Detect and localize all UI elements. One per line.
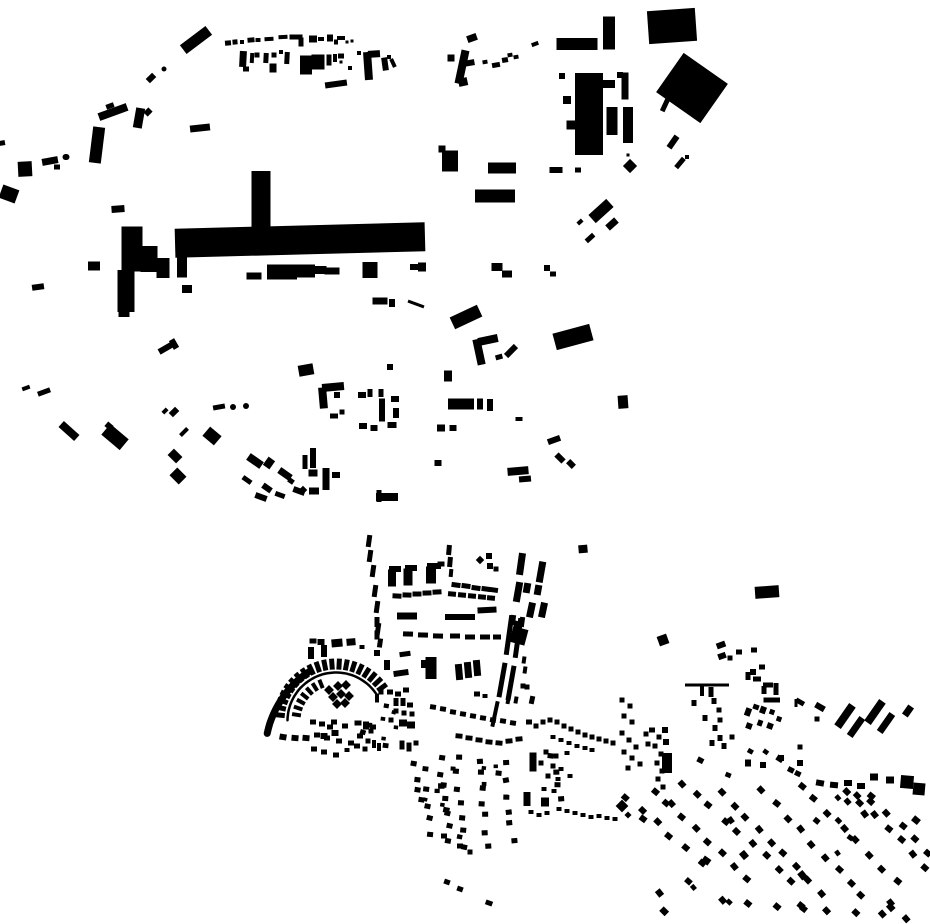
building (32, 283, 45, 291)
building (581, 813, 586, 817)
house (684, 877, 693, 886)
house (677, 779, 686, 788)
building (54, 165, 60, 170)
house (481, 766, 486, 770)
building (389, 299, 395, 307)
building (473, 660, 481, 677)
building (331, 639, 343, 648)
house (480, 785, 486, 791)
building-footprint-map (0, 0, 930, 924)
building (529, 810, 534, 814)
building (389, 566, 401, 572)
building (324, 736, 330, 741)
building (360, 645, 365, 649)
building (611, 741, 616, 746)
building (240, 40, 244, 44)
house (639, 814, 648, 823)
building (438, 562, 445, 567)
house (718, 896, 727, 905)
building (477, 334, 498, 346)
building (333, 681, 343, 691)
building (59, 421, 80, 441)
building (751, 648, 757, 653)
house (558, 796, 564, 802)
building (616, 800, 629, 813)
building (330, 414, 338, 419)
building (490, 717, 497, 723)
building (523, 582, 532, 593)
building (504, 344, 518, 358)
building (256, 38, 261, 42)
house (664, 832, 673, 841)
house (756, 785, 765, 794)
building (597, 814, 602, 818)
building (366, 739, 371, 744)
house (553, 769, 559, 774)
house (747, 748, 754, 755)
house (923, 849, 930, 858)
building (410, 264, 418, 270)
building (662, 753, 672, 773)
building (405, 565, 417, 571)
building (334, 392, 340, 398)
building (461, 583, 471, 589)
house (503, 760, 509, 765)
building (118, 270, 135, 312)
building (312, 55, 325, 70)
building (534, 724, 539, 729)
building (377, 743, 381, 751)
building (157, 258, 170, 278)
building (507, 53, 513, 58)
building (308, 647, 314, 659)
house (842, 787, 851, 796)
amphitheater-tick (329, 658, 335, 669)
building (363, 747, 368, 752)
house (834, 849, 841, 856)
building (703, 715, 708, 721)
house (383, 703, 389, 708)
house (725, 898, 732, 905)
house (902, 914, 911, 923)
building (505, 665, 516, 700)
house (454, 786, 461, 792)
building (393, 408, 399, 418)
building (443, 879, 450, 886)
building (336, 739, 342, 744)
building (766, 722, 774, 730)
building (505, 738, 512, 744)
building (722, 743, 727, 749)
building (502, 57, 509, 63)
building (402, 711, 407, 716)
building (384, 660, 390, 670)
building (440, 706, 447, 712)
house (792, 862, 801, 871)
house (655, 888, 664, 897)
building (886, 777, 894, 784)
house (677, 812, 686, 821)
building (401, 698, 406, 706)
building (575, 168, 581, 173)
building (284, 52, 290, 64)
building (554, 452, 565, 463)
amphitheater-tick (305, 686, 314, 695)
building (513, 55, 519, 60)
building (542, 787, 547, 791)
house (414, 777, 421, 783)
building (254, 492, 267, 502)
building (646, 742, 651, 747)
building (603, 17, 615, 50)
building (314, 733, 320, 738)
building (310, 639, 317, 644)
building (247, 273, 262, 280)
building (371, 425, 378, 431)
building (182, 285, 192, 293)
building (346, 638, 356, 646)
building (519, 475, 531, 482)
building (261, 483, 273, 494)
house (477, 759, 483, 764)
house (693, 790, 702, 799)
building (455, 664, 463, 681)
house (739, 850, 749, 860)
building (607, 107, 618, 135)
building (448, 55, 455, 62)
building (388, 422, 397, 428)
building (267, 265, 297, 280)
building (318, 639, 325, 645)
building (774, 683, 779, 695)
house (787, 766, 795, 774)
building (374, 650, 380, 656)
house (653, 817, 662, 826)
building (369, 729, 374, 734)
house (459, 815, 465, 821)
building (377, 638, 383, 648)
building (143, 107, 152, 116)
building (529, 696, 536, 705)
building (623, 107, 633, 143)
building (357, 51, 361, 55)
house (812, 817, 820, 825)
house (834, 794, 841, 801)
house (908, 850, 917, 859)
building (746, 672, 751, 680)
house (762, 851, 771, 860)
building (399, 651, 411, 657)
building (502, 271, 512, 278)
building (583, 746, 588, 750)
building (816, 779, 825, 786)
house (414, 787, 421, 793)
building (551, 735, 556, 739)
house (911, 815, 921, 825)
building (630, 756, 635, 761)
house (505, 809, 512, 815)
building (243, 67, 249, 72)
building (368, 389, 373, 397)
building (716, 641, 727, 650)
house (458, 800, 464, 805)
building (585, 233, 596, 243)
building (515, 736, 522, 742)
building (713, 725, 718, 731)
building (101, 424, 128, 450)
building (815, 717, 820, 722)
building (18, 161, 33, 177)
building (355, 721, 362, 726)
house (870, 810, 879, 819)
house (718, 848, 727, 857)
building (546, 774, 551, 779)
building (358, 392, 366, 398)
building (667, 135, 680, 150)
house (482, 812, 488, 817)
building (458, 592, 466, 598)
house (437, 772, 444, 778)
building (247, 37, 254, 43)
building (370, 565, 377, 578)
building (736, 650, 742, 655)
building (88, 262, 100, 271)
building (375, 694, 379, 703)
amphitheater-tick (296, 698, 306, 706)
house (809, 794, 818, 803)
building (656, 777, 661, 782)
building (662, 727, 668, 733)
house (920, 863, 929, 872)
house (775, 865, 784, 874)
building (685, 684, 729, 687)
building (477, 607, 496, 614)
building (492, 263, 503, 271)
building (830, 782, 838, 789)
house (807, 840, 816, 849)
building (303, 455, 308, 469)
building (583, 733, 588, 738)
building (190, 123, 211, 132)
house (456, 755, 462, 760)
building (274, 491, 285, 499)
building (348, 741, 354, 746)
building (63, 154, 70, 160)
building (366, 535, 373, 548)
building (310, 720, 316, 725)
building (403, 688, 409, 693)
building (483, 694, 488, 698)
building (407, 703, 413, 708)
building (323, 468, 330, 490)
building (569, 727, 574, 732)
house (460, 827, 466, 833)
building (513, 696, 518, 704)
building (325, 268, 340, 275)
building (864, 699, 885, 725)
building (300, 56, 312, 75)
building (490, 701, 499, 727)
house (438, 783, 444, 789)
amphitheater-tick (336, 658, 342, 669)
building (487, 399, 493, 411)
building (321, 750, 327, 755)
house (427, 832, 433, 838)
building (225, 40, 231, 46)
house (547, 753, 554, 759)
building (712, 698, 717, 704)
building (389, 718, 394, 723)
building (647, 8, 697, 44)
building (388, 570, 396, 587)
building (372, 585, 379, 598)
building (760, 762, 766, 768)
amphitheater-tick (343, 659, 350, 671)
building (373, 298, 388, 305)
house (381, 736, 386, 740)
building (325, 79, 348, 88)
building (450, 709, 457, 715)
building (263, 53, 269, 63)
building (634, 745, 639, 750)
building (377, 490, 382, 502)
building (321, 645, 327, 657)
building (133, 107, 145, 128)
building (351, 40, 354, 43)
building (685, 155, 689, 159)
building (605, 816, 610, 820)
building (590, 748, 595, 752)
house (798, 782, 807, 791)
building (177, 257, 187, 278)
building (912, 782, 925, 795)
building (375, 617, 380, 627)
building (493, 635, 501, 640)
building (202, 427, 221, 446)
building (644, 732, 649, 737)
building (392, 593, 401, 598)
building (547, 435, 561, 445)
building (536, 561, 547, 583)
house (843, 797, 851, 805)
building (500, 718, 507, 724)
house (494, 764, 498, 768)
building (620, 731, 625, 736)
building (340, 410, 345, 415)
building (263, 457, 275, 470)
building (485, 899, 493, 906)
building (119, 309, 130, 317)
house (878, 909, 887, 918)
building (246, 453, 264, 469)
building (562, 724, 567, 729)
house (796, 824, 805, 833)
building (657, 634, 670, 647)
building (161, 407, 168, 414)
building (298, 363, 315, 376)
house (877, 865, 886, 874)
building (348, 66, 352, 70)
building (565, 751, 570, 755)
building (255, 53, 260, 58)
building (456, 886, 463, 893)
building (465, 735, 472, 741)
building (346, 41, 349, 44)
building (552, 789, 557, 793)
building (752, 704, 759, 711)
house (461, 844, 468, 850)
building (389, 58, 396, 68)
building (372, 740, 376, 748)
house (457, 834, 463, 840)
building (297, 265, 315, 278)
building (655, 761, 660, 766)
building (575, 73, 603, 155)
building (847, 716, 865, 738)
building (279, 733, 287, 740)
house (382, 743, 388, 749)
house (502, 777, 509, 783)
house (893, 877, 902, 886)
house (743, 899, 752, 908)
building (617, 72, 623, 78)
building (475, 737, 482, 743)
house (511, 838, 517, 844)
building (769, 709, 775, 715)
building (798, 745, 803, 750)
building (331, 720, 337, 725)
building (624, 811, 631, 818)
house (823, 809, 832, 818)
building (387, 364, 393, 370)
building (516, 553, 526, 576)
building (334, 40, 338, 45)
building (437, 425, 445, 432)
building (492, 62, 501, 68)
building (576, 219, 583, 226)
building (89, 126, 105, 163)
building (626, 766, 631, 771)
map-canvas (0, 0, 930, 924)
building (522, 656, 527, 663)
building (433, 633, 443, 638)
building (460, 711, 467, 717)
house (835, 865, 844, 874)
building (403, 631, 413, 636)
building (613, 817, 618, 821)
building (22, 385, 31, 391)
amphitheater-tick (321, 659, 328, 671)
house (482, 782, 487, 786)
house (742, 874, 751, 883)
building (449, 569, 454, 577)
building (718, 735, 723, 741)
house (851, 908, 860, 917)
building (559, 73, 565, 79)
house (410, 760, 417, 766)
building (578, 545, 588, 554)
house (897, 835, 906, 844)
building (407, 300, 424, 309)
building (623, 159, 637, 173)
building (342, 724, 348, 729)
building (649, 728, 655, 733)
house (740, 813, 749, 822)
house (822, 906, 831, 915)
buildings-layer (0, 8, 926, 907)
building (464, 662, 472, 679)
building (404, 569, 413, 586)
